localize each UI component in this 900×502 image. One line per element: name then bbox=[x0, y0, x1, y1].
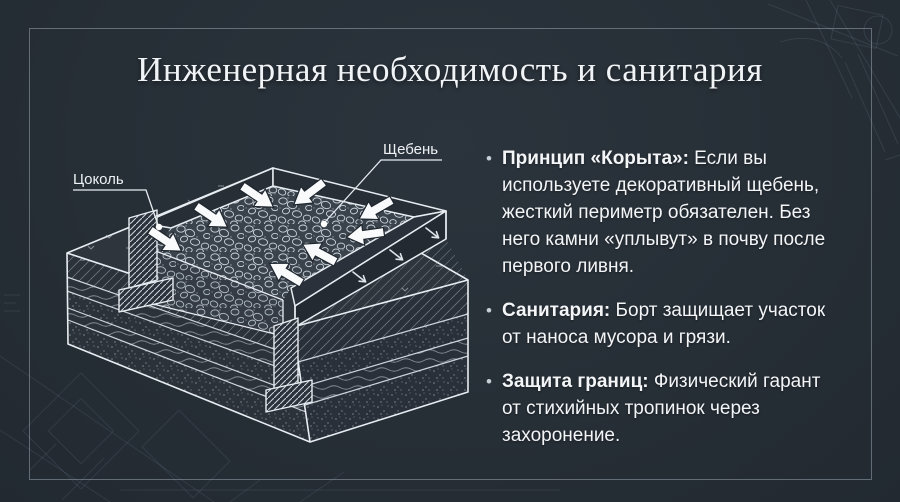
list-item: • Защита границ: Физический гарант от ст… bbox=[486, 368, 826, 449]
bullet-text: Санитария: Борт защищает участок от нано… bbox=[502, 297, 826, 351]
plinth-label: Цоколь bbox=[73, 171, 124, 188]
bullet-marker: • bbox=[486, 368, 502, 449]
bullet-lead: Защита границ: bbox=[502, 371, 649, 392]
gravel-leader-dot bbox=[321, 221, 327, 227]
bullet-list: • Принцип «Корыта»: Если вы используете … bbox=[486, 145, 826, 466]
plinth-leader-dot bbox=[156, 224, 162, 230]
bullet-marker: • bbox=[486, 145, 502, 280]
bullet-marker: • bbox=[486, 297, 502, 351]
bullet-text: Принцип «Корыта»: Если вы используете де… bbox=[502, 145, 826, 280]
gravel-label: Щебень bbox=[383, 141, 438, 158]
slide: { "slide": { "title": "Инженерная необхо… bbox=[0, 0, 900, 502]
gravel-bed-diagram: Цоколь Щебень bbox=[40, 140, 480, 490]
list-item: • Санитария: Борт защищает участок от на… bbox=[486, 297, 826, 351]
bullet-text: Защита границ: Физический гарант от стих… bbox=[502, 368, 826, 449]
page-title: Инженерная необходимость и санитария bbox=[0, 50, 900, 90]
list-item: • Принцип «Корыта»: Если вы используете … bbox=[486, 145, 826, 280]
bullet-lead: Принцип «Корыта»: bbox=[502, 148, 689, 169]
bullet-lead: Санитария: bbox=[502, 300, 610, 321]
